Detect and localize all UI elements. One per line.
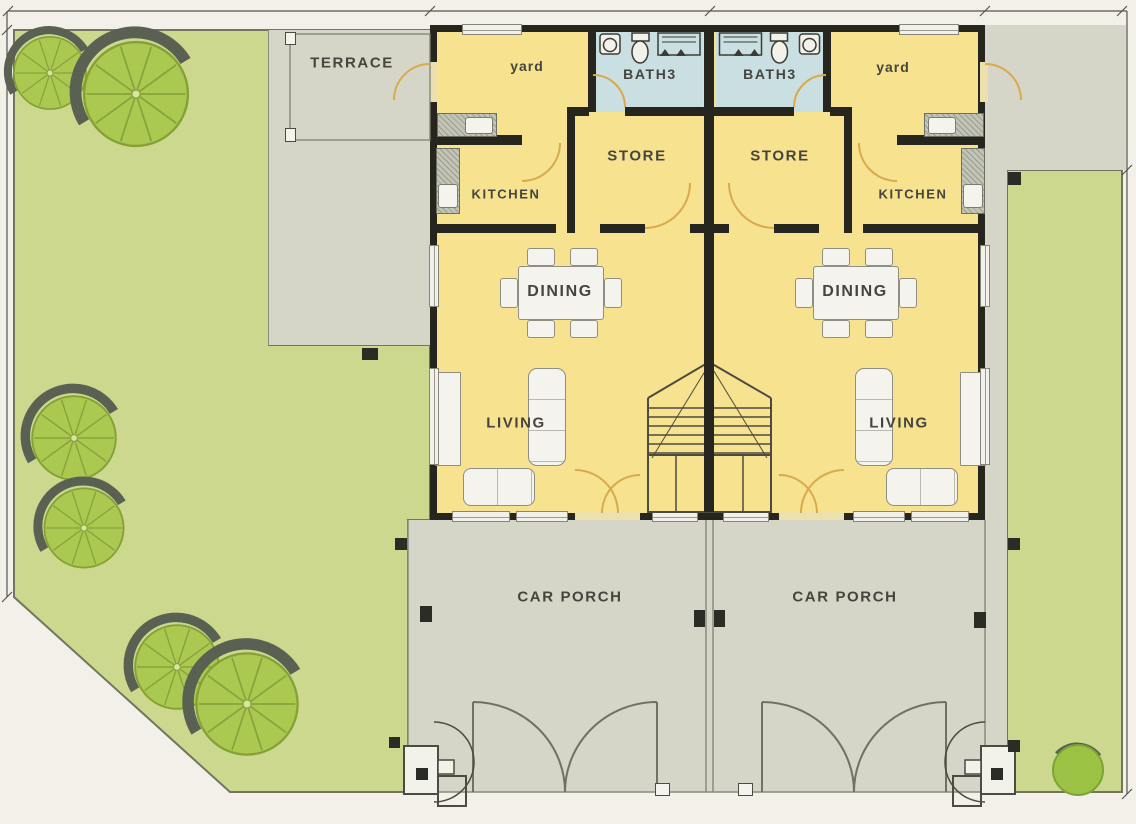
porch-post <box>714 610 725 627</box>
terrace-column <box>285 128 296 142</box>
room-label-kitchen-right: KITCHEN <box>879 187 948 202</box>
porch-post <box>694 610 705 627</box>
gate-arc-icon <box>473 702 946 792</box>
tree-icon <box>25 388 115 479</box>
bath-fixtures-left <box>600 33 700 63</box>
party-wall <box>704 25 714 512</box>
fence-post <box>1008 740 1020 752</box>
room-label-bath3-right: BATH3 <box>743 66 797 82</box>
tree-icon <box>38 481 124 568</box>
room-label-bath3-left: BATH3 <box>623 66 677 82</box>
fence-post <box>362 348 378 360</box>
fence-post <box>395 538 407 550</box>
room-label-store-left: STORE <box>607 148 666 165</box>
side-gate-left <box>404 722 474 806</box>
overlay-layer <box>0 0 1136 824</box>
tree-icon <box>76 32 188 146</box>
porch-post <box>974 612 986 628</box>
gate-post <box>991 768 1003 780</box>
terrace-column <box>285 32 296 45</box>
room-label-store-right: STORE <box>750 148 809 165</box>
room-label-terrace: TERRACE <box>310 55 394 72</box>
gate-latch <box>655 783 670 796</box>
gate-latch <box>738 783 753 796</box>
car-porch-lines <box>408 520 985 792</box>
room-label-yard-right: yard <box>876 59 910 75</box>
gate-post <box>416 768 428 780</box>
room-label-car-porch-right: CAR PORCH <box>792 589 897 606</box>
room-label-car-porch-left: CAR PORCH <box>517 589 622 606</box>
room-label-dining-left: DINING <box>527 283 593 301</box>
room-label-dining-right: DINING <box>822 283 888 301</box>
bath-fixtures-right <box>720 33 820 63</box>
room-label-living-left: LIVING <box>486 415 546 432</box>
fence-post <box>1008 538 1020 550</box>
room-label-yard-left: yard <box>510 58 544 74</box>
floor-plan-canvas: TERRACE yard yard BATH3 BATH3 STORE STOR… <box>0 0 1136 824</box>
fence-post <box>1008 172 1021 185</box>
bush-icon <box>1053 745 1103 795</box>
room-label-living-right: LIVING <box>869 415 929 432</box>
tree-icon <box>188 644 298 755</box>
terrace-outline <box>290 34 430 140</box>
room-label-kitchen-left: KITCHEN <box>472 187 541 202</box>
fence-post <box>389 737 400 748</box>
porch-post <box>420 606 432 622</box>
side-gate-right <box>945 722 1015 806</box>
